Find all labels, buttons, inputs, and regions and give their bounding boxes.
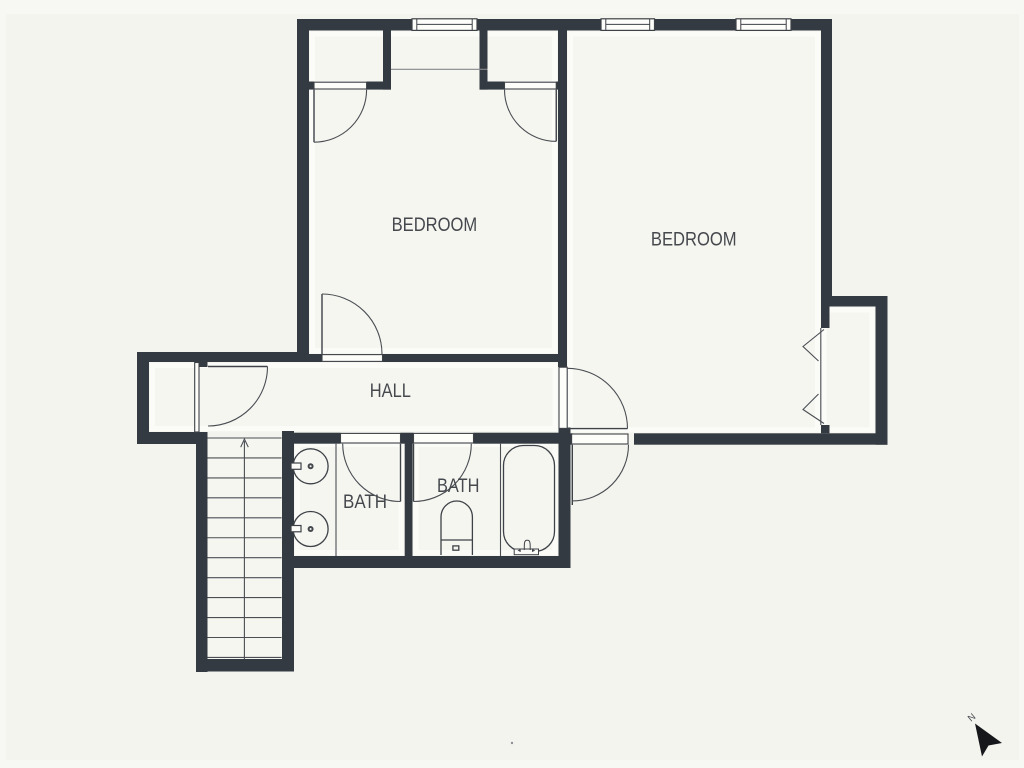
svg-text:BEDROOM: BEDROOM [651,229,737,251]
svg-text:BATH: BATH [437,475,479,497]
svg-text:BATH: BATH [343,491,387,513]
svg-text:BEDROOM: BEDROOM [392,214,478,236]
svg-text:HALL: HALL [370,380,411,402]
